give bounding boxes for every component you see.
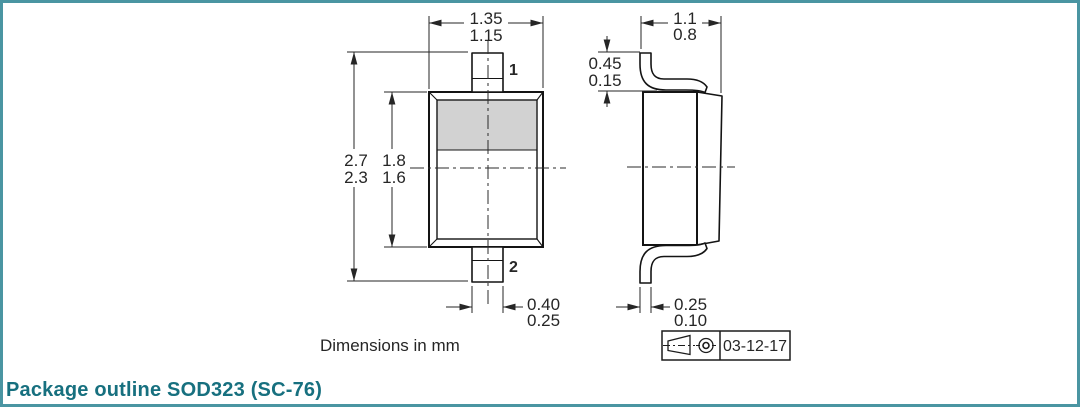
technical-drawing: 1 2 1.35 1.15 2.7 2.3 1.8 [0, 0, 1080, 408]
side-body-outline [643, 92, 697, 245]
side-view [627, 53, 735, 283]
title-block: 03-12-17 [662, 331, 790, 360]
dimensions-note: Dimensions in mm [320, 336, 460, 355]
cathode-band [438, 101, 537, 150]
side-lead-top [640, 53, 707, 93]
dim-value-min: 1.6 [382, 168, 406, 187]
side-body-right-face [697, 92, 722, 245]
dim-value-min: 0.10 [674, 311, 707, 330]
side-lead-bottom [640, 243, 707, 283]
dim-value-min: 0.25 [527, 311, 560, 330]
dim-side-lead-thickness: 0.25 0.10 [616, 287, 707, 330]
package-outline-figure: 1 2 1.35 1.15 2.7 2.3 1.8 [0, 0, 1080, 408]
dim-front-lead-width: 0.40 0.25 [446, 286, 560, 330]
pin2-label: 2 [509, 259, 518, 276]
dim-value-min: 1.15 [469, 26, 502, 45]
pin1-label: 1 [509, 62, 518, 79]
dim-value-min: 0.8 [673, 25, 697, 44]
dim-front-body-height: 1.8 1.6 [382, 92, 427, 247]
page-title: Package outline SOD323 (SC-76) [6, 379, 322, 402]
dim-value-min: 2.3 [344, 168, 368, 187]
dim-value-min: 0.15 [588, 71, 621, 90]
drawing-date: 03-12-17 [723, 338, 787, 355]
